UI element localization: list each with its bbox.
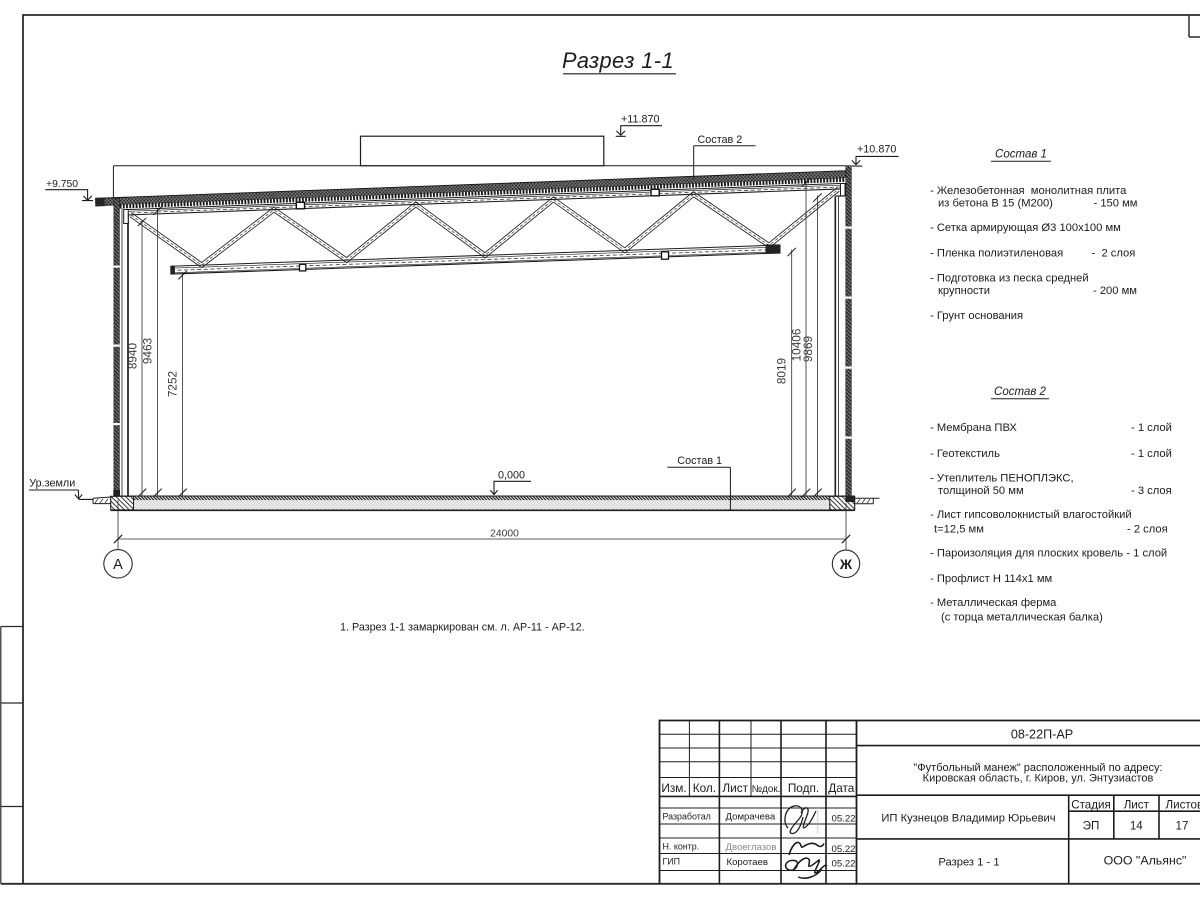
svg-text:Домрачева: Домрачева <box>726 812 776 823</box>
svg-text:Разработал: Разработал <box>663 812 711 822</box>
svg-text:- 200 мм: - 200 мм <box>1093 285 1137 297</box>
svg-text:05.22: 05.22 <box>832 814 856 825</box>
svg-text:t=12,5 мм: t=12,5 мм <box>934 523 984 535</box>
svg-text:А: А <box>113 557 123 573</box>
svg-text:Двоеглазов: Двоеглазов <box>726 842 777 853</box>
svg-text:- Металлическая ферма: - Металлическая ферма <box>930 597 1057 609</box>
svg-text:- 150 мм: - 150 мм <box>1094 197 1138 209</box>
svg-text:0,000: 0,000 <box>498 470 525 482</box>
svg-text:Разрез 1 - 1: Разрез 1 - 1 <box>938 856 999 868</box>
svg-text:- Пароизоляция для плоских кро: - Пароизоляция для плоских кровель <box>930 548 1123 560</box>
svg-text:- Мембрана ПВХ: - Мембрана ПВХ <box>930 422 1017 434</box>
svg-text:(с торца металлическая балка): (с торца металлическая балка) <box>941 611 1103 623</box>
svg-text:Лист: Лист <box>1124 798 1150 811</box>
svg-text:24000: 24000 <box>490 529 519 540</box>
svg-text:- Геотекстиль: - Геотекстиль <box>930 448 1000 460</box>
svg-text:Дата: Дата <box>828 781 855 795</box>
svg-text:ЭП: ЭП <box>1083 820 1100 833</box>
svg-text:- Пленка полиэтиленовая: - Пленка полиэтиленовая <box>930 248 1063 260</box>
svg-text:1. Разрез 1-1 замаркирован см.: 1. Разрез 1-1 замаркирован см. л. АР-11 … <box>340 622 585 634</box>
svg-text:- 2 слоя: - 2 слоя <box>1127 523 1168 535</box>
svg-text:Ур.земли: Ур.земли <box>29 478 75 490</box>
svg-text:- Подготовка из песка средней: - Подготовка из песка средней <box>930 273 1089 285</box>
svg-text:ГИП: ГИП <box>663 857 681 867</box>
svg-text:+9.750: +9.750 <box>46 179 78 190</box>
svg-text:- 2 слоя: - 2 слоя <box>1092 248 1136 260</box>
svg-text:+10.870: +10.870 <box>857 144 896 156</box>
svg-text:ИП Кузнецов Владимир Юрьевич: ИП Кузнецов Владимир Юрьевич <box>881 813 1055 825</box>
svg-text:крупности: крупности <box>938 285 990 297</box>
svg-text:- Лист гипсоволокнистый влагос: - Лист гипсоволокнистый влагостойкий <box>930 509 1132 521</box>
svg-text:№док.: №док. <box>752 784 781 795</box>
svg-text:17: 17 <box>1176 820 1189 833</box>
svg-text:Состав 1: Состав 1 <box>677 455 722 467</box>
svg-text:05.22: 05.22 <box>832 844 856 855</box>
svg-text:- Железобетонная монолитная п: - Железобетонная монолитная плита <box>930 185 1127 197</box>
svg-text:Коротаев: Коротаев <box>727 857 768 868</box>
svg-text:+11.870: +11.870 <box>621 114 660 126</box>
svg-text:Состав 2: Состав 2 <box>698 134 743 146</box>
svg-text:Ж: Ж <box>839 557 853 572</box>
svg-text:7252: 7252 <box>166 371 180 397</box>
svg-text:Н. контр.: Н. контр. <box>663 842 700 852</box>
svg-text:Состав 2: Состав 2 <box>994 386 1046 398</box>
svg-text:- 1 слой: - 1 слой <box>1126 548 1167 560</box>
svg-text:- Грунт основания: - Грунт основания <box>930 310 1023 322</box>
svg-text:Подп.: Подп. <box>788 781 819 795</box>
svg-text:Разрез 1-1: Разрез 1-1 <box>562 48 674 73</box>
svg-text:08-22П-АР: 08-22П-АР <box>1011 728 1073 742</box>
svg-text:Изм.: Изм. <box>661 781 686 795</box>
svg-text:Кировская область, г. Киров, у: Кировская область, г. Киров, ул. Энтузиа… <box>923 773 1154 785</box>
svg-text:- 1 слой: - 1 слой <box>1131 448 1172 460</box>
svg-text:ООО "Альянс": ООО "Альянс" <box>1104 854 1187 868</box>
svg-text:8019: 8019 <box>775 358 789 384</box>
svg-text:Лист: Лист <box>722 781 748 795</box>
svg-text:Состав 1: Состав 1 <box>995 149 1047 161</box>
svg-text:Стадия: Стадия <box>1071 798 1111 811</box>
svg-text:05.22: 05.22 <box>832 859 856 870</box>
svg-text:толщиной 50 мм: толщиной 50 мм <box>938 485 1024 497</box>
svg-text:- Сетка армирующая Ø3 100х100: - Сетка армирующая Ø3 100х100 мм <box>930 222 1121 234</box>
svg-text:8940: 8940 <box>125 342 139 369</box>
svg-text:9869: 9869 <box>801 336 815 362</box>
svg-text:- 3 слоя: - 3 слоя <box>1131 485 1172 497</box>
svg-text:Листов: Листов <box>1166 798 1200 811</box>
svg-text:- Утеплитель ПЕНОПЛЭКС,: - Утеплитель ПЕНОПЛЭКС, <box>930 472 1074 484</box>
svg-text:9463: 9463 <box>141 337 155 364</box>
svg-text:14: 14 <box>1130 820 1143 833</box>
svg-text:Кол.: Кол. <box>693 781 716 795</box>
svg-text:из бетона В 15 (М200): из бетона В 15 (М200) <box>938 197 1053 209</box>
svg-text:- Профлист Н 114х1 мм: - Профлист Н 114х1 мм <box>930 573 1052 585</box>
svg-text:- 1 слой: - 1 слой <box>1131 422 1172 434</box>
